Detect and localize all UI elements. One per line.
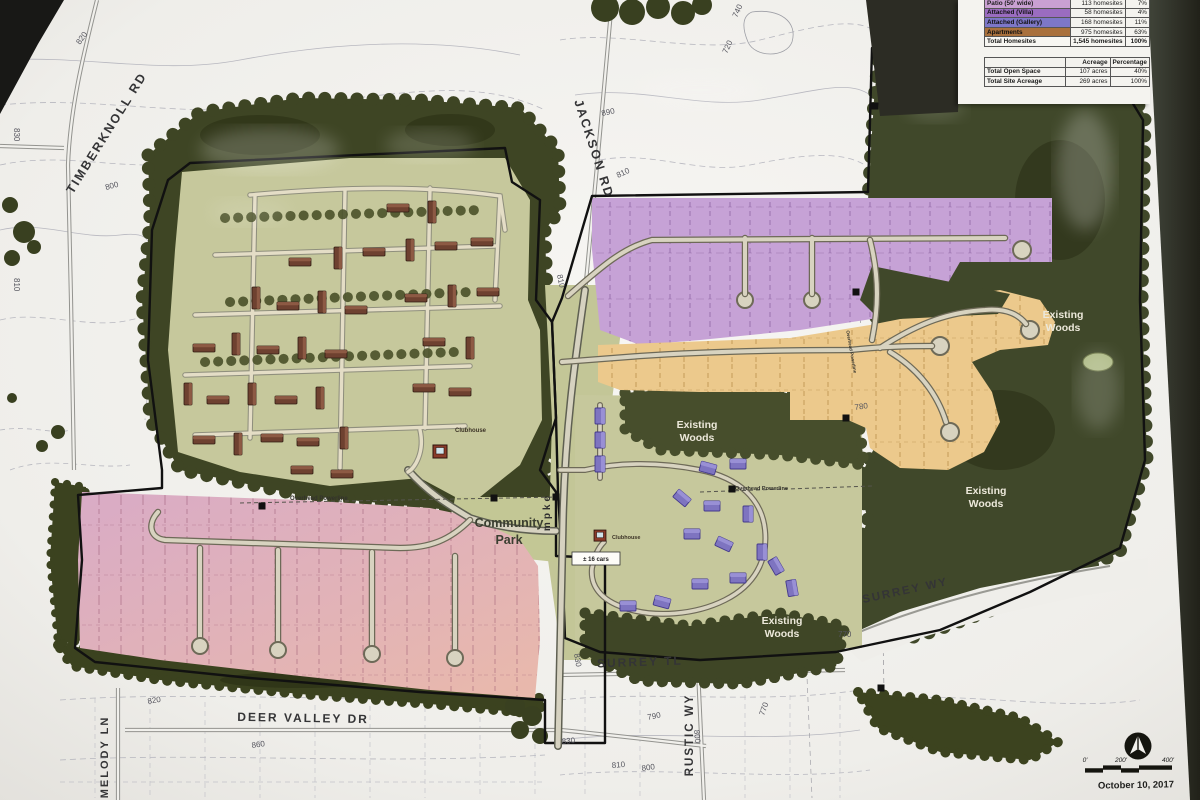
table-row: Total Site Acreage 269 acres 100%	[985, 77, 1150, 87]
existing-woods-label: Woods	[969, 498, 1004, 510]
legend-percent: 4%	[1125, 8, 1149, 18]
road-label-tnpke: mpke	[542, 493, 553, 531]
header-acreage: Acreage	[1066, 58, 1110, 68]
legend-category: Apartments	[985, 27, 1071, 37]
existing-woods-label: Woods	[1046, 322, 1081, 334]
scale-0: 0'	[1083, 757, 1089, 764]
contour-label: 800	[641, 762, 656, 773]
contour-label: 810	[611, 760, 626, 770]
table-row: Patio (50' wide) 113 homesites 7%	[985, 0, 1150, 8]
header-percentage: Percentage	[1110, 58, 1149, 68]
clubhouse-icon	[594, 530, 606, 541]
contour-label: 830	[561, 736, 576, 746]
contour-label: 810	[12, 278, 21, 292]
acreage-value: 107 acres	[1066, 67, 1110, 77]
acreage-percent: 100%	[1110, 77, 1149, 87]
clubhouse-label: Clubhouse	[455, 428, 487, 434]
contour-label: 860	[251, 739, 266, 750]
existing-woods-label: Existing	[762, 615, 803, 627]
legend-count: 58 homesites	[1071, 8, 1125, 18]
existing-woods-label: Existing	[677, 419, 718, 431]
legend-count: 113 homesites	[1071, 0, 1125, 8]
legend-category: Attached (Gallery)	[985, 18, 1071, 28]
powerline-label: Overhead Powerline	[290, 496, 348, 502]
table-header-row: Acreage Percentage	[985, 58, 1150, 68]
table-row: Attached (Gallery) 168 homesites 11%	[985, 18, 1150, 28]
parking-note: ± 16 cars	[583, 557, 609, 563]
legend-category: Attached (Villa)	[985, 8, 1071, 18]
acreage-label: Total Site Acreage	[985, 77, 1066, 87]
acreage-legend-table: Acreage Percentage Total Open Space 107 …	[984, 57, 1150, 87]
legend-percent: 7%	[1125, 0, 1149, 8]
table-row: Total Open Space 107 acres 40%	[985, 67, 1150, 77]
site-plan-photo: TIMBERKNOLL RD JACKSON RD SURREY WY SURR…	[0, 0, 1200, 800]
clubhouse-label: Clubhouse	[612, 535, 640, 541]
road-label-surrey-tl: SURREY TL	[597, 654, 683, 671]
contour-label: 780	[854, 401, 869, 412]
legend-percent: 63%	[1125, 27, 1149, 37]
legend-percent: 11%	[1125, 18, 1149, 28]
table-row-total: Total Homesites 1,545 homesites 100%	[985, 37, 1150, 47]
contour-label: 770	[838, 630, 852, 639]
table-row: Apartments 975 homesites 63%	[985, 27, 1150, 37]
legend-percent: 100%	[1125, 37, 1149, 47]
contour-label: 800	[692, 729, 702, 744]
existing-woods-label: Existing	[966, 485, 1007, 497]
legend-category: Patio (50' wide)	[985, 0, 1071, 8]
header-blank	[985, 58, 1066, 68]
clubhouse-icon	[433, 445, 447, 458]
road-label-deer-valley: DEER VALLEY DR	[237, 710, 369, 726]
community-park-label: Park	[495, 533, 522, 547]
legend-sheet: Patio (50' wide) 113 homesites 7% Attach…	[958, 0, 1150, 104]
existing-woods-label: Existing	[1043, 309, 1084, 321]
homesites-legend-table: Patio (50' wide) 113 homesites 7% Attach…	[984, 0, 1150, 47]
road-label-melody: MELODY LN	[99, 716, 111, 799]
community-park-label: Community	[475, 516, 544, 530]
scale-200: 200'	[1114, 757, 1128, 764]
existing-woods-label: Woods	[680, 432, 715, 444]
legend-count: 1,545 homesites	[1071, 37, 1125, 47]
table-row: Attached (Villa) 58 homesites 4%	[985, 8, 1150, 18]
north-arrow-icon	[1125, 733, 1152, 760]
scale-400: 400'	[1162, 757, 1175, 764]
existing-woods-label: Woods	[765, 628, 800, 640]
powerline-label: Overhead Powerline	[735, 486, 788, 492]
legend-count: 168 homesites	[1071, 18, 1125, 28]
site-plan-map: TIMBERKNOLL RD JACKSON RD SURREY WY SURR…	[0, 0, 1200, 800]
acreage-percent: 40%	[1110, 67, 1149, 77]
legend-category: Total Homesites	[985, 37, 1071, 47]
legend-count: 975 homesites	[1071, 27, 1125, 37]
contour-label: 830	[12, 128, 21, 142]
acreage-label: Total Open Space	[985, 67, 1066, 77]
plan-date: October 10, 2017	[1098, 779, 1174, 791]
acreage-value: 269 acres	[1066, 77, 1110, 87]
